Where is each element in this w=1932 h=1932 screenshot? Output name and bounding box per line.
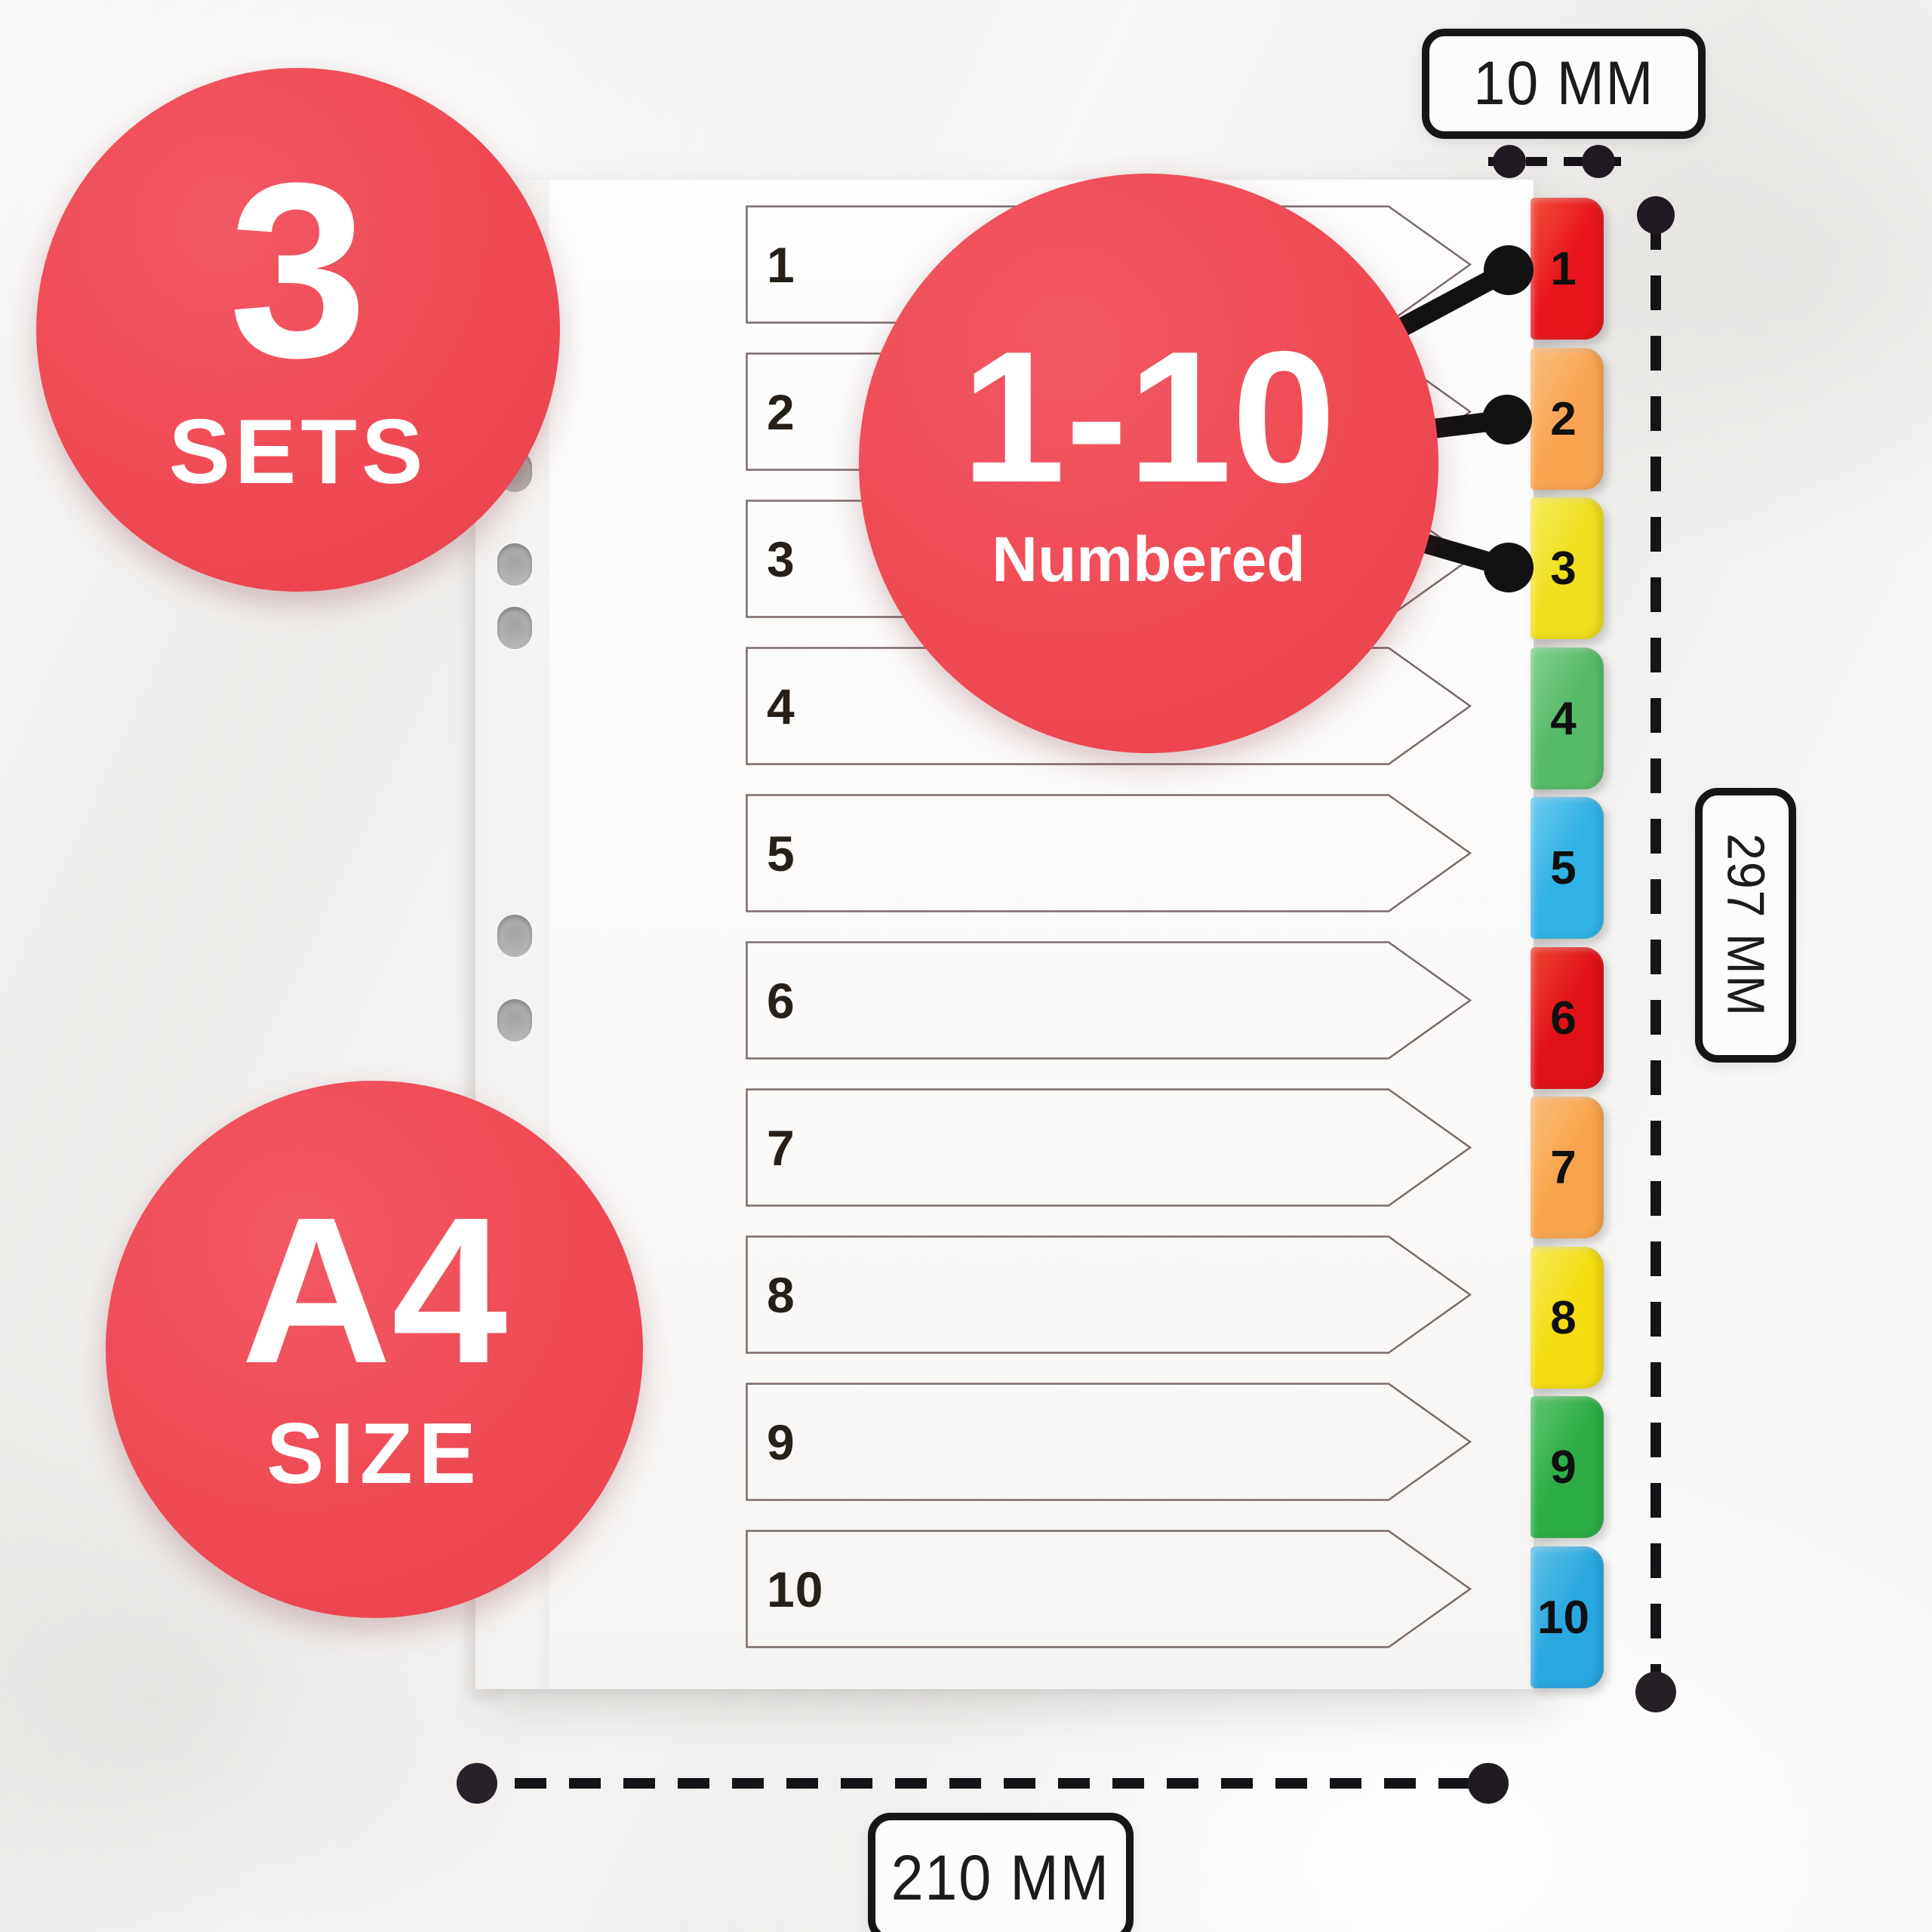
tab-width-dot-left <box>1493 145 1526 178</box>
sheet-height-label: 297 MM <box>1695 788 1796 1063</box>
badge-1-10-numbered: 1-10 Numbered <box>859 174 1438 753</box>
sheet-width-text: 210 MM <box>891 1841 1110 1915</box>
badge-3-sets: 3 SETS <box>36 68 560 592</box>
sheet-height-dot-top <box>1637 196 1675 234</box>
tab-width-text: 10 MM <box>1473 48 1654 119</box>
tab-connector-dots <box>1482 245 1534 592</box>
badge-1-10-label: Numbered <box>992 523 1305 596</box>
tab-width-dot-right <box>1582 145 1615 178</box>
tab-width-label: 10 MM <box>1422 29 1706 139</box>
badge-a4-label: SIZE <box>266 1404 481 1503</box>
connector-dot-tab2 <box>1482 395 1532 445</box>
sheet-height-text: 297 MM <box>1715 833 1776 1017</box>
connector-dot-tab3 <box>1484 543 1534 592</box>
sheet-width-dot-left <box>457 1763 497 1804</box>
badge-a4-size: A4 SIZE <box>106 1081 643 1618</box>
badge-a4-value: A4 <box>241 1195 508 1387</box>
sheet-width-dot-right <box>1468 1763 1509 1804</box>
badge-3-sets-value: 3 <box>229 155 368 385</box>
connector-dot-tab1 <box>1484 245 1534 295</box>
sheet-height-dot-bottom <box>1635 1672 1676 1712</box>
product-infographic: 12345678910 12345678910 10 MM 297 MM <box>0 0 1932 1932</box>
sheet-width-label: 210 MM <box>868 1813 1134 1932</box>
badge-3-sets-label: SETS <box>169 398 428 504</box>
badge-1-10-value: 1-10 <box>961 331 1336 503</box>
